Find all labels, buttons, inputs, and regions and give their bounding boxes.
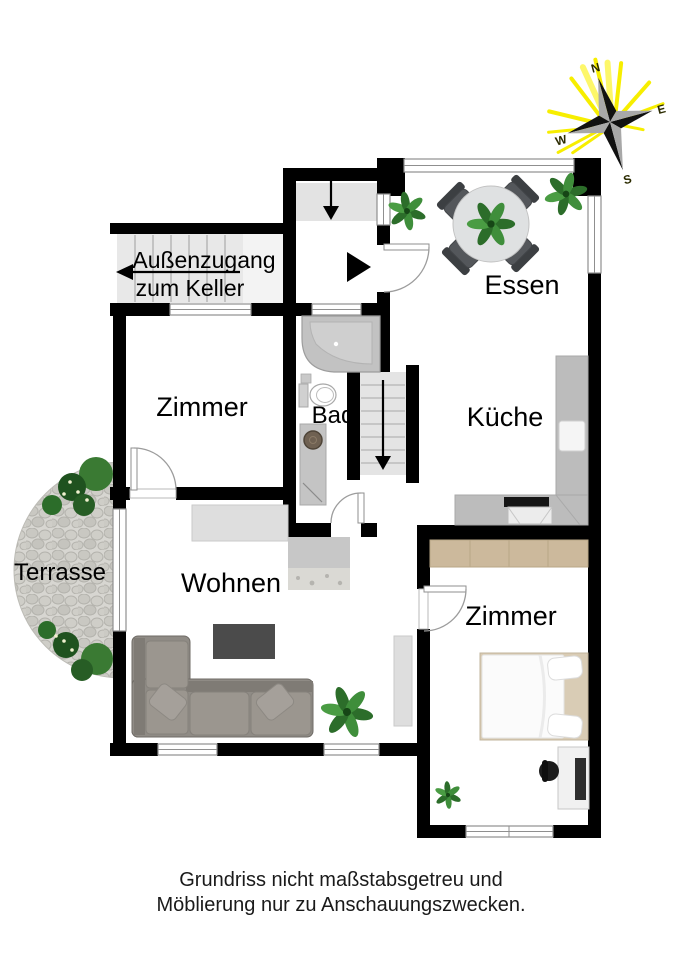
window-essen-right xyxy=(588,196,601,273)
sideboard-top xyxy=(192,505,288,541)
window-zimmer-top xyxy=(170,304,251,315)
interior-stairs-down xyxy=(360,372,406,475)
entry-hall xyxy=(296,174,377,282)
fireplace xyxy=(288,537,350,590)
bed xyxy=(480,653,588,740)
window-bedroom-bottom xyxy=(466,826,553,837)
compass-south-label: S xyxy=(622,172,633,188)
floor-plan: Terrasse Außenzugang zum Keller xyxy=(0,0,679,960)
compass-west-label: W xyxy=(554,132,569,149)
bad-label: Bad xyxy=(312,402,355,429)
bathtub xyxy=(302,316,380,372)
basement-access-label-line1: Außenzugang xyxy=(132,247,275,273)
floor-plant xyxy=(316,682,377,742)
window-bad-top xyxy=(312,304,361,315)
sideboard-right xyxy=(394,636,412,726)
disclaimer-line1: Grundriss nicht maßstabsgetreu und xyxy=(179,869,503,891)
door-bad xyxy=(331,493,364,523)
window-hall-essen xyxy=(377,194,390,225)
disclaimer: Grundriss nicht maßstabsgetreu und Möbli… xyxy=(156,869,525,916)
kueche-label: Küche xyxy=(467,402,544,432)
vanity-sink xyxy=(300,424,326,505)
disclaimer-line2: Möblierung nur zu Anschauungszwecken. xyxy=(156,894,525,916)
terrace: Terrasse xyxy=(14,457,122,681)
bedroom: Zimmer xyxy=(430,540,589,813)
basement-access-label-line2: zum Keller xyxy=(136,275,245,301)
floor-plan-page: Terrasse Außenzugang zum Keller xyxy=(0,0,679,960)
kitchen: Küche xyxy=(455,356,588,525)
pillow xyxy=(547,713,583,738)
compass-north-label: N xyxy=(590,60,602,76)
laptop xyxy=(575,758,586,800)
door-zimmer-bottom xyxy=(419,586,466,631)
kitchen-appliance xyxy=(559,421,585,451)
terrace-door-glazing xyxy=(113,509,126,631)
wardrobe xyxy=(430,540,588,567)
door-essen xyxy=(384,244,429,292)
desk-chair xyxy=(539,760,559,782)
pillow xyxy=(547,655,583,680)
cooktop xyxy=(504,497,549,507)
window-wohnen-bottom-left xyxy=(158,744,217,755)
desk xyxy=(558,747,589,809)
living-room: Wohnen xyxy=(132,505,412,742)
kitchen-sink xyxy=(508,507,552,524)
door-zimmer-top xyxy=(130,448,176,498)
wohnen-label: Wohnen xyxy=(181,568,281,598)
entry-step-strip xyxy=(296,183,377,221)
compass-east-label: E xyxy=(656,101,667,117)
small-plant xyxy=(430,777,466,813)
zimmer-top-label: Zimmer xyxy=(156,392,247,422)
window-essen-top xyxy=(404,159,574,172)
window-wohnen-bottom-right xyxy=(324,744,379,755)
basement-access-stairs: Außenzugang zum Keller xyxy=(116,234,283,303)
essen-label: Essen xyxy=(484,270,559,300)
entry-direction-marker xyxy=(347,252,371,282)
rug xyxy=(213,624,275,659)
zimmer-bottom-label: Zimmer xyxy=(465,601,556,631)
terrasse-label: Terrasse xyxy=(14,559,106,586)
bath-shelf xyxy=(301,374,311,383)
